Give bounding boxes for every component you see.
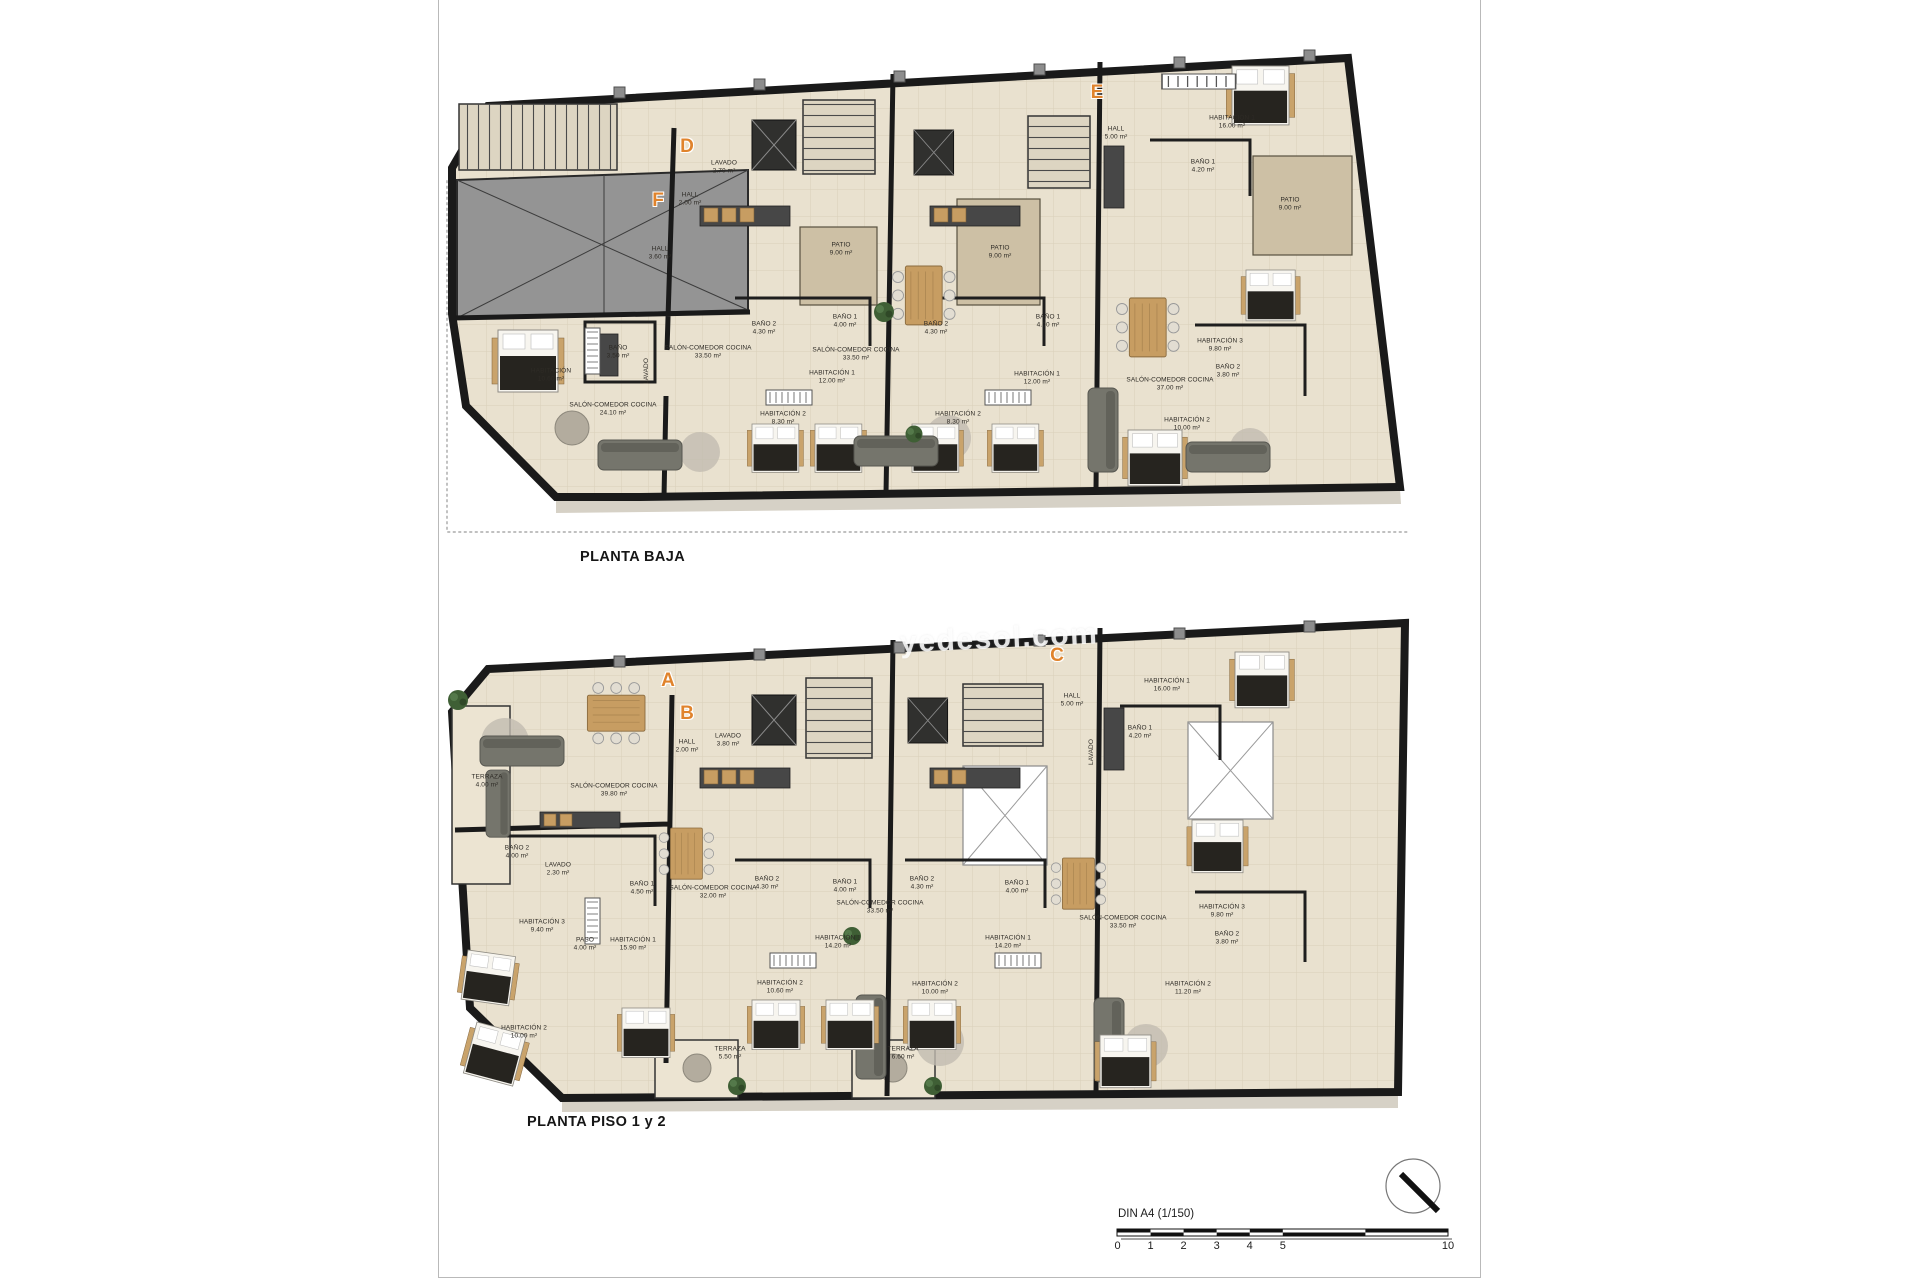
floor-plan-sheet: HALL3.60 m²BAÑO3.50 m²LAVADOHABITACIÓN10… [0, 0, 1920, 1280]
north-indicator-icon [1386, 1159, 1440, 1213]
elevator-icon [752, 120, 796, 170]
plan-title-planta-baja: PLANTA BAJA [580, 549, 685, 565]
scale-bar [1117, 1229, 1452, 1240]
floorplan-planta-piso-1-y-2 [448, 621, 1405, 1112]
floorplan-planta-baja [447, 50, 1408, 532]
garage-ramp [457, 170, 748, 318]
elevator-icon [752, 695, 796, 745]
plan-title-planta-piso-1-y-2: PLANTA PISO 1 y 2 [527, 1114, 666, 1130]
scale-bar-label: DIN A4 (1/150) [1118, 1208, 1194, 1220]
elevator-icon [908, 698, 948, 743]
elevator-icon [914, 130, 954, 175]
